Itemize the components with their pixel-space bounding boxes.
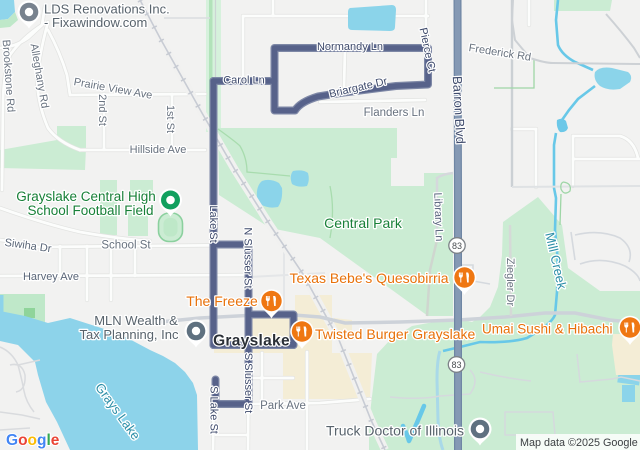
svg-text:N Slusser St: N Slusser St [242,227,254,288]
svg-text:Map data ©2025 Google: Map data ©2025 Google [520,437,638,449]
svg-text:- Fixawindow.com: - Fixawindow.com [44,15,147,30]
svg-text:Truck Doctor of Illinois: Truck Doctor of Illinois [326,423,464,439]
svg-text:Harvey Ave: Harvey Ave [23,271,79,283]
svg-text:Grayslake Central High: Grayslake Central High [16,189,156,204]
svg-text:83: 83 [451,360,461,370]
svg-text:Tax Planning, Inc: Tax Planning, Inc [79,327,179,342]
svg-text:School St: School St [101,240,151,252]
svg-text:Central Park: Central Park [324,215,403,231]
svg-text:School Football Field: School Football Field [27,203,153,218]
svg-text:Park Ave: Park Ave [260,400,306,412]
svg-text:The Freeze: The Freeze [186,293,258,309]
svg-text:Ziegler Dr: Ziegler Dr [504,258,516,307]
svg-text:Hillside Ave: Hillside Ave [130,144,187,156]
svg-text:Carol Ln: Carol Ln [223,75,265,87]
svg-text:S Lake St: S Lake St [208,386,220,434]
svg-text:83: 83 [452,241,462,251]
svg-text:Flanders Ln: Flanders Ln [364,107,425,119]
svg-text:Texas Bebe's Quesobirria: Texas Bebe's Quesobirria [289,270,448,286]
svg-text:Umai Sushi & Hibachi: Umai Sushi & Hibachi [482,322,613,337]
svg-text:Library Ln: Library Ln [431,192,445,241]
svg-text:2nd St: 2nd St [96,94,108,126]
svg-text:Normandy Ln: Normandy Ln [317,41,383,53]
svg-text:1st St: 1st St [164,105,176,133]
svg-text:Google: Google [6,432,60,449]
svg-text:Grayslake: Grayslake [213,333,290,350]
svg-text:Lake St: Lake St [207,205,219,242]
svg-text:S Slusser St: S Slusser St [242,353,254,414]
svg-text:MLN Wealth &: MLN Wealth & [94,313,178,328]
svg-text:Twisted Burger Grayslake: Twisted Burger Grayslake [315,326,475,342]
